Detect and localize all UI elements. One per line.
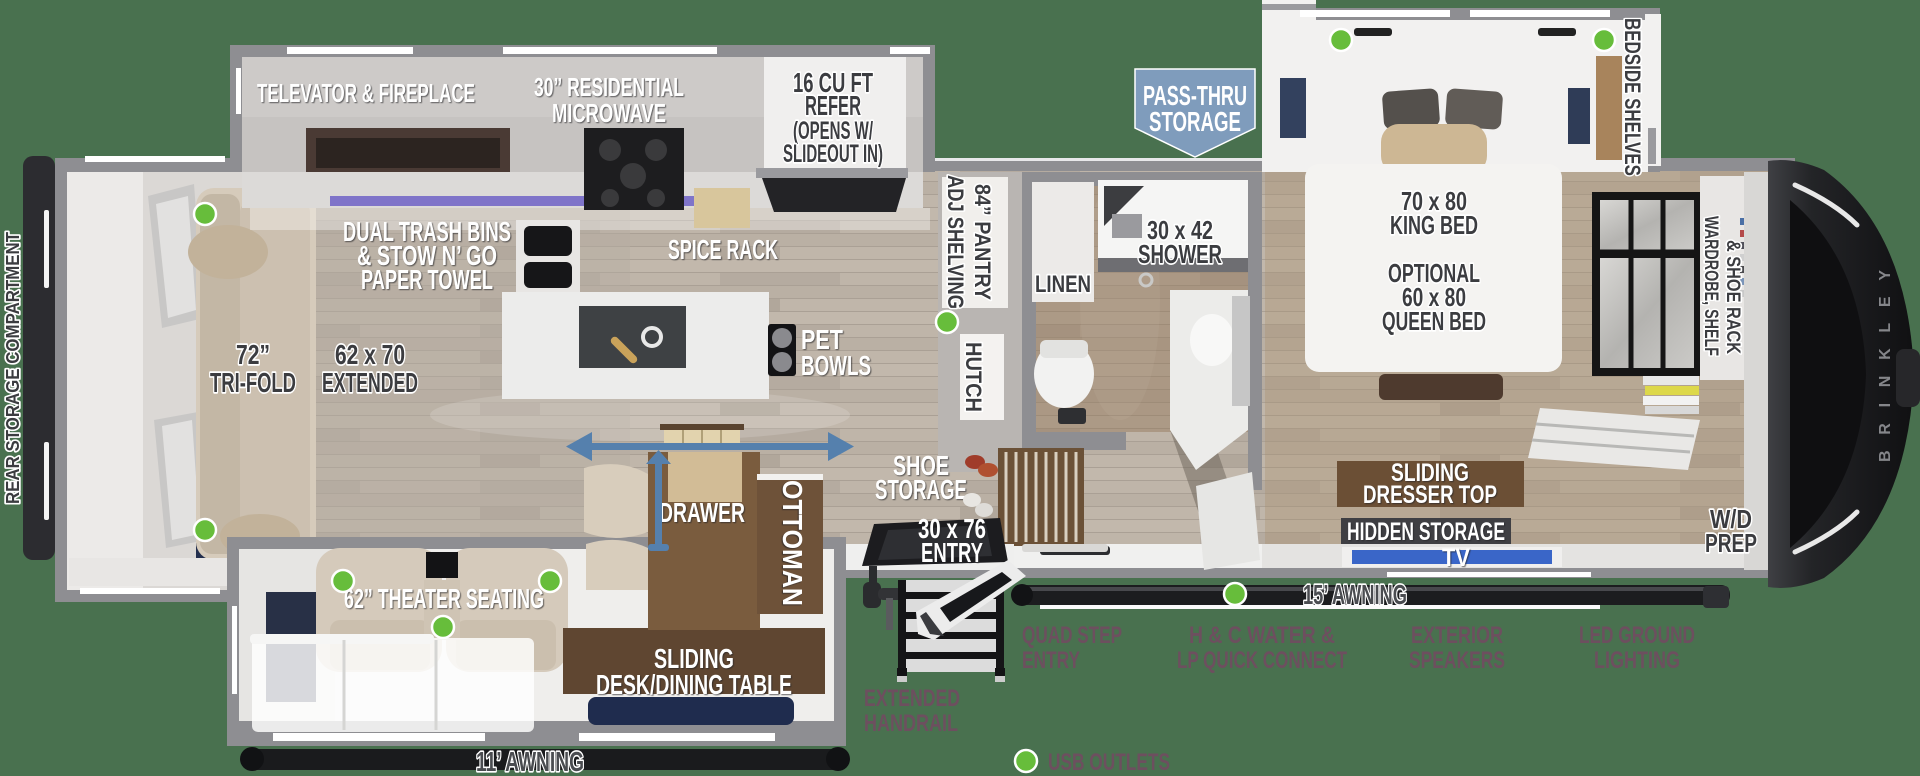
svg-text:PAPER TOWEL: PAPER TOWEL xyxy=(361,264,493,295)
svg-text:REAR STORAGE COMPARTMENT: REAR STORAGE COMPARTMENT xyxy=(3,232,23,504)
svg-text:HANDRAIL: HANDRAIL xyxy=(864,710,958,737)
svg-text:HIDDEN STORAGE: HIDDEN STORAGE xyxy=(1347,518,1505,546)
svg-text:DESK/DINING TABLE: DESK/DINING TABLE xyxy=(596,669,792,700)
svg-text:ENTRY: ENTRY xyxy=(921,537,983,568)
svg-text:ENTRY: ENTRY xyxy=(1022,647,1080,674)
svg-text:& SHOE RACK: & SHOE RACK xyxy=(1722,240,1743,354)
svg-text:TV: TV xyxy=(1442,544,1470,572)
svg-text:USB OUTLETS: USB OUTLETS xyxy=(1048,749,1170,776)
svg-text:QUAD STEP: QUAD STEP xyxy=(1022,622,1122,649)
svg-text:BOWLS: BOWLS xyxy=(801,350,871,381)
svg-text:QUEEN BED: QUEEN BED xyxy=(1382,306,1486,336)
svg-text:62” THEATER SEATING: 62” THEATER SEATING xyxy=(344,583,544,614)
svg-text:TRI-FOLD: TRI-FOLD xyxy=(210,367,296,398)
svg-text:H & C WATER &: H & C WATER & xyxy=(1189,622,1335,649)
svg-text:MICROWAVE: MICROWAVE xyxy=(552,98,666,128)
svg-text:STORAGE: STORAGE xyxy=(1149,106,1241,137)
svg-text:DRAWER: DRAWER xyxy=(659,497,745,528)
svg-text:EXTENDED: EXTENDED xyxy=(322,367,418,398)
svg-text:HUTCH: HUTCH xyxy=(961,342,986,412)
svg-text:BEDSIDE SHELVES: BEDSIDE SHELVES xyxy=(1620,18,1645,176)
svg-text:SPICE RACK: SPICE RACK xyxy=(668,234,778,265)
svg-text:84” PANTRY: 84” PANTRY xyxy=(970,184,995,300)
svg-text:WARDROBE, SHELF: WARDROBE, SHELF xyxy=(1700,216,1721,356)
svg-text:STORAGE: STORAGE xyxy=(875,474,967,505)
svg-text:SLIDEOUT IN): SLIDEOUT IN) xyxy=(783,140,883,168)
svg-text:TELEVATOR & FIREPLACE: TELEVATOR & FIREPLACE xyxy=(257,78,475,108)
svg-text:PREP: PREP xyxy=(1705,528,1757,558)
svg-text:11’ AWNING: 11’ AWNING xyxy=(476,746,584,776)
svg-text:SPEAKERS: SPEAKERS xyxy=(1409,647,1505,674)
svg-text:EXTERIOR: EXTERIOR xyxy=(1411,622,1503,649)
svg-text:DRESSER TOP: DRESSER TOP xyxy=(1363,481,1497,509)
svg-text:OTTOMAN: OTTOMAN xyxy=(777,480,808,606)
svg-text:KING BED: KING BED xyxy=(1390,210,1478,240)
svg-text:LED GROUND: LED GROUND xyxy=(1579,622,1695,649)
svg-text:EXTENDED: EXTENDED xyxy=(864,685,960,712)
svg-text:LINEN: LINEN xyxy=(1035,271,1091,298)
svg-text:LIGHTING: LIGHTING xyxy=(1594,647,1680,674)
svg-text:LP QUICK CONNECT: LP QUICK CONNECT xyxy=(1177,647,1347,674)
svg-text:15’ AWNING: 15’ AWNING xyxy=(1303,579,1407,610)
svg-text:62 x 70: 62 x 70 xyxy=(335,339,405,370)
svg-text:72”: 72” xyxy=(236,339,270,370)
svg-text:SHOWER: SHOWER xyxy=(1138,239,1222,269)
svg-text:ADJ SHELVING: ADJ SHELVING xyxy=(943,175,968,309)
